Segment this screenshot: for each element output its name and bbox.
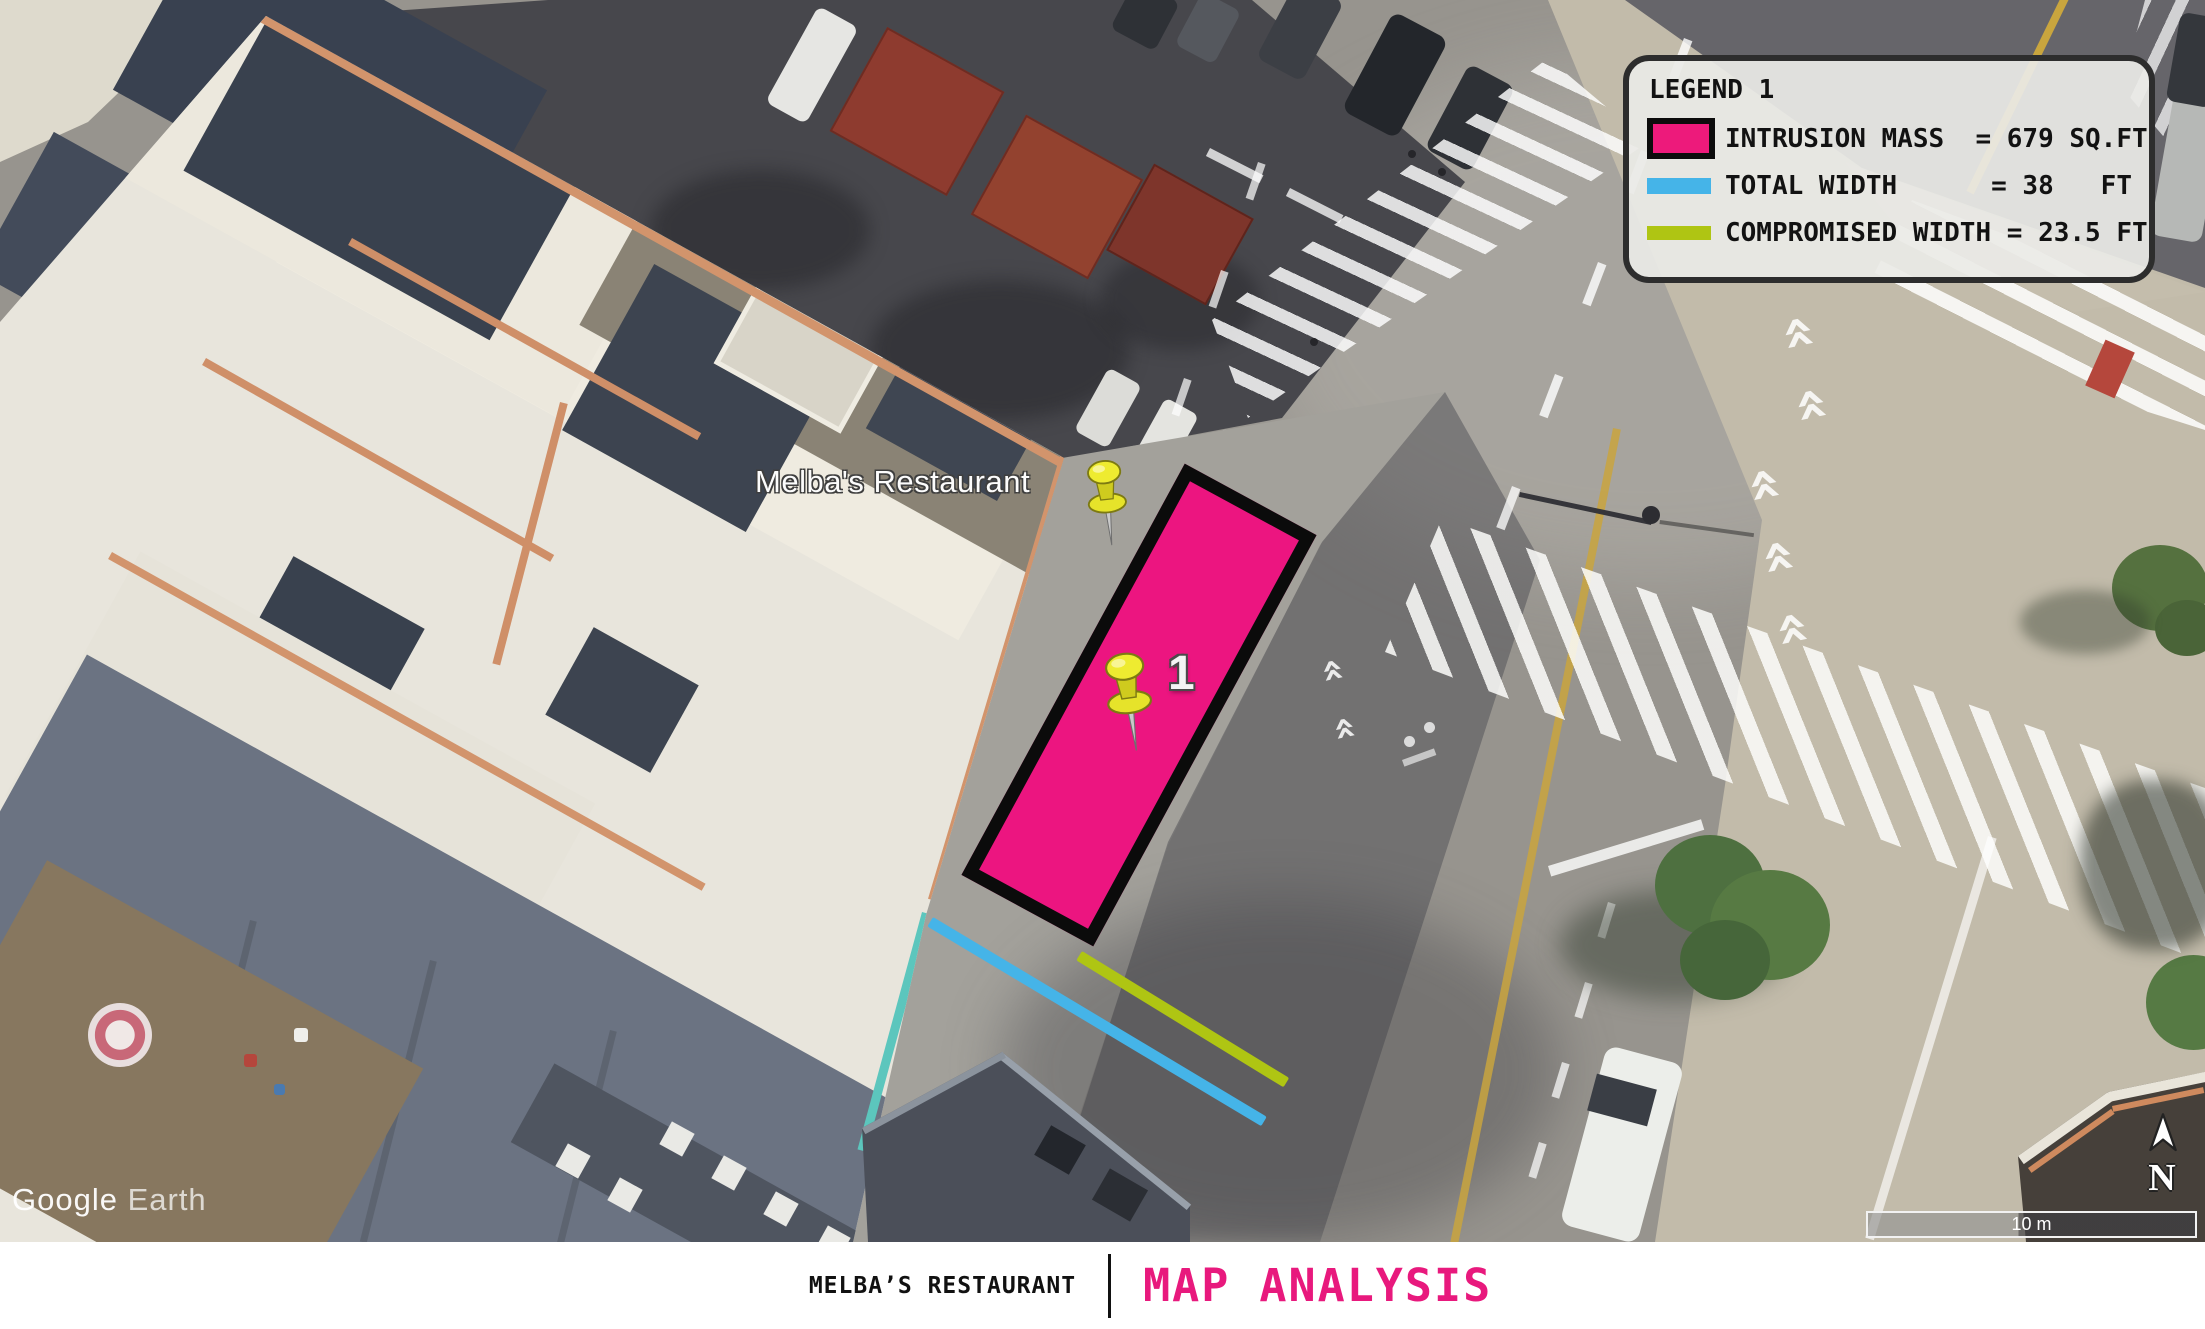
pedestrian	[1408, 150, 1416, 158]
intrusion-mass-swatch	[1647, 118, 1725, 159]
deck-umbrella	[88, 1003, 152, 1067]
legend-row-text: TOTAL WIDTH = 38 FT	[1725, 171, 2132, 201]
street-light-head	[1642, 506, 1660, 524]
pedestrian	[1438, 168, 1446, 176]
watermark-earth: Earth	[128, 1182, 207, 1217]
bike-marking	[1404, 736, 1415, 747]
tree-shadow-east	[2020, 590, 2150, 654]
legend-row-text: INTRUSION MASS = 679 SQ.FT	[1725, 124, 2148, 154]
legend-row-text: COMPROMISED WIDTH = 23.5 FT	[1725, 218, 2148, 248]
north-label: N	[2136, 1156, 2188, 1200]
footer-page-title: MAP ANALYSIS	[1143, 1259, 1492, 1312]
footer-inner: MELBA’S RESTAURANT MAP ANALYSIS	[809, 1254, 1492, 1318]
footer-divider	[1108, 1254, 1111, 1318]
tree-large	[1680, 920, 1770, 1000]
parapet-inner-2	[202, 358, 554, 562]
deck-clutter-red	[244, 1054, 257, 1067]
google-earth-watermark: Google Earth	[12, 1182, 207, 1218]
dash-south-4	[1528, 1142, 1546, 1179]
legend-row-total-width: TOTAL WIDTH = 38 FT	[1647, 162, 2135, 209]
pedestrian	[1310, 338, 1318, 346]
deck-clutter-white	[294, 1028, 308, 1042]
legend-row-intrusion-mass: INTRUSION MASS = 679 SQ.FT	[1647, 115, 2135, 162]
satellite-map[interactable]: « « « « « « «	[0, 0, 2205, 1242]
scale-bar: 10 m	[1866, 1211, 2197, 1238]
tree-shadow-roof	[2080, 780, 2205, 950]
pushpin-icon[interactable]	[1073, 453, 1138, 550]
compromised-width-swatch	[1647, 226, 1725, 240]
total-width-swatch	[1647, 178, 1725, 194]
dash-south-2	[1574, 982, 1592, 1019]
roof-navy-notch-2	[545, 627, 698, 773]
map-analysis-page: « « « « « « «	[0, 0, 2205, 1329]
deck-clutter-blue	[274, 1084, 285, 1095]
watermark-google: Google	[12, 1182, 128, 1217]
legend-title: LEGEND 1	[1649, 75, 2135, 105]
footer-project-name: MELBA’S RESTAURANT	[809, 1273, 1076, 1299]
legend-row-compromised-width: COMPROMISED WIDTH = 23.5 FT	[1647, 209, 2135, 256]
footer: MELBA’S RESTAURANT MAP ANALYSIS	[0, 1242, 2205, 1329]
place-label: Melba's Restaurant	[755, 464, 1030, 500]
marker-number-label: 1	[1168, 646, 1195, 701]
north-arrow-icon	[2140, 1112, 2186, 1158]
bike-marking	[1424, 722, 1435, 733]
legend-panel: LEGEND 1 INTRUSION MASS = 679 SQ.FT TOTA…	[1623, 55, 2155, 283]
